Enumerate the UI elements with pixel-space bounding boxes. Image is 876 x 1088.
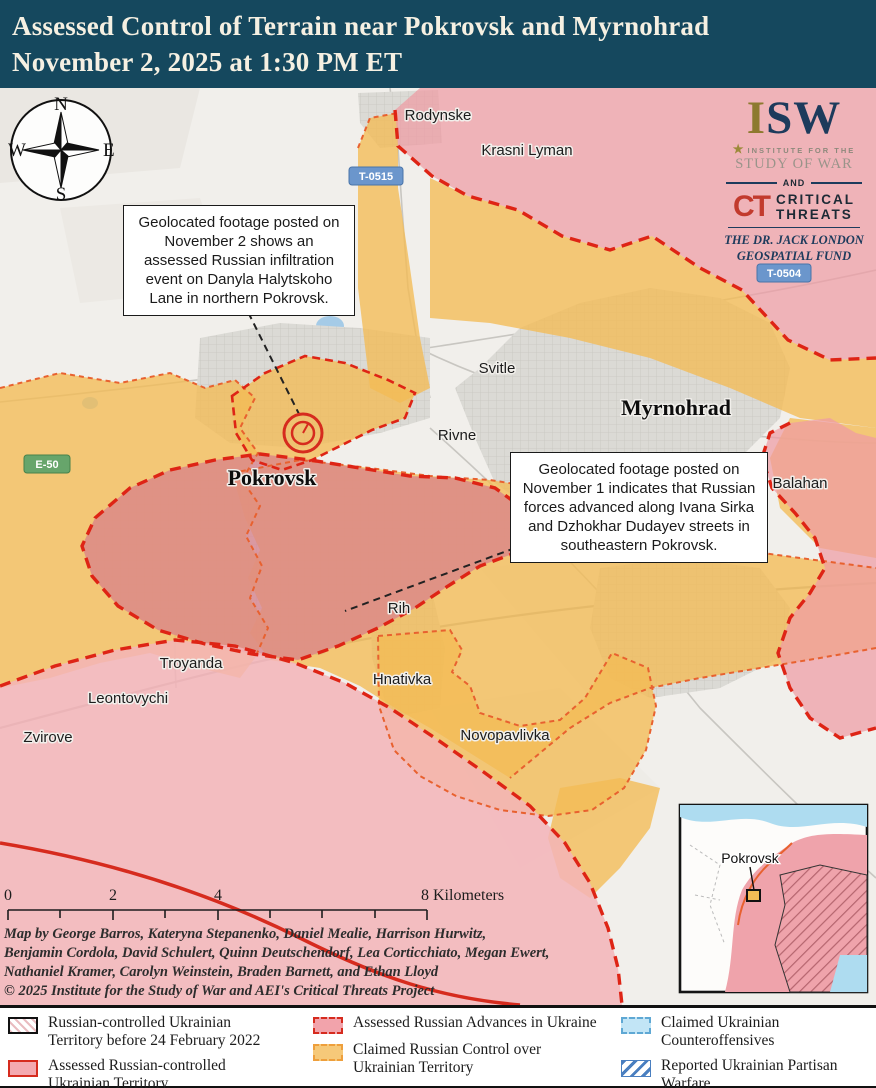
scale-8km: 8 Kilometers [421, 887, 504, 904]
compass-n: N [54, 94, 68, 115]
credits-line3: Nathaniel Kramer, Carolyn Weinstein, Bra… [3, 964, 439, 980]
isw-map-page: Assessed Control of Terrain near Pokrovs… [0, 0, 876, 1088]
town-troyanda: Troyanda [160, 655, 223, 672]
geospatial-fund: THE DR. JACK LONDONGEOSPATIAL FUND [718, 232, 870, 264]
ct-mark: CT [733, 192, 769, 222]
town-rih: Rih [388, 600, 411, 617]
and-divider: AND [726, 178, 862, 188]
legend-item-counteroffensives: Claimed Ukrainian Counteroffensives [621, 1014, 871, 1050]
title-bar: Assessed Control of Terrain near Pokrovs… [0, 0, 876, 88]
legend-item-advances: Assessed Russian Advances in Ukraine [313, 1014, 621, 1034]
compass-e: E [103, 140, 115, 161]
town-rivne: Rivne [438, 427, 476, 444]
town-krasni-lyman: Krasni Lyman [481, 142, 572, 159]
legend-item-assessed-control: Assessed Russian-controlled Ukrainian Te… [8, 1057, 313, 1088]
swatch-advances [313, 1017, 343, 1034]
swatch-counteroffensives [621, 1017, 651, 1034]
isw-logo: ISW [718, 96, 870, 140]
road-badge-t0515: T-0515 [359, 171, 393, 183]
inset-pokrovsk-label: Pokrovsk [721, 850, 780, 866]
scale-2: 2 [109, 887, 117, 904]
isw-logo-text: SW [766, 92, 841, 144]
road-badge-t0504: T-0504 [767, 268, 802, 280]
isw-institute-line: ★INSTITUTE FOR THE [718, 142, 870, 156]
compass-w: W [8, 140, 26, 161]
critical-threats-logo: CT CRITICALTHREATS [718, 192, 870, 222]
credits-line2: Benjamin Cordola, David Schulert, Quinn … [3, 945, 549, 961]
legend-item-pre2022: Russian-controlled Ukrainian Territory b… [8, 1014, 313, 1050]
ct-name: CRITICALTHREATS [776, 192, 855, 222]
town-zvirove: Zvirove [23, 729, 72, 746]
legend-item-partisan: Reported Ukrainian Partisan Warfare [621, 1057, 871, 1088]
swatch-assessed-control [8, 1060, 38, 1077]
compass-s: S [56, 184, 67, 205]
town-novopavlivka: Novopavlivka [460, 727, 550, 744]
page-title-line1: Assessed Control of Terrain near Pokrovs… [12, 8, 862, 44]
city-pokrovsk: Pokrovsk [228, 465, 318, 490]
legend-item-claimed-control: Claimed Russian Control over Ukrainian T… [313, 1041, 621, 1077]
scale-0: 0 [4, 887, 12, 904]
town-balahan: Balahan [772, 475, 827, 492]
swatch-partisan-hatch [621, 1060, 651, 1077]
star-icon: ★ [733, 142, 746, 156]
credits-line4: © 2025 Institute for the Study of War an… [4, 983, 435, 999]
scale-4: 4 [214, 887, 222, 904]
callout-november-2: Geolocated footage posted on November 2 … [123, 205, 355, 316]
isw-study-of-war: STUDY OF WAR [718, 156, 870, 173]
callout-november-1: Geolocated footage posted on November 1 … [510, 452, 768, 563]
city-myrnohrad: Myrnohrad [621, 395, 731, 420]
map-legend: Russian-controlled Ukrainian Territory b… [0, 1005, 876, 1088]
town-rodynske: Rodynske [405, 107, 472, 124]
swatch-pre2022-hatch [8, 1017, 38, 1034]
swatch-claimed-control [313, 1044, 343, 1061]
page-title-line2: November 2, 2025 at 1:30 PM ET [12, 44, 862, 80]
road-badge-e50: E-50 [35, 459, 58, 471]
fund-divider [728, 227, 860, 228]
town-svitle: Svitle [479, 360, 516, 377]
inset-locator-map: Pokrovsk [680, 805, 867, 992]
credits-line1: Map by George Barros, Kateryna Stepanenk… [3, 926, 486, 942]
logo-block: ISW ★INSTITUTE FOR THE STUDY OF WAR AND … [718, 96, 870, 264]
town-hnativka: Hnativka [373, 671, 432, 688]
town-leontovychi: Leontovychi [88, 690, 168, 707]
